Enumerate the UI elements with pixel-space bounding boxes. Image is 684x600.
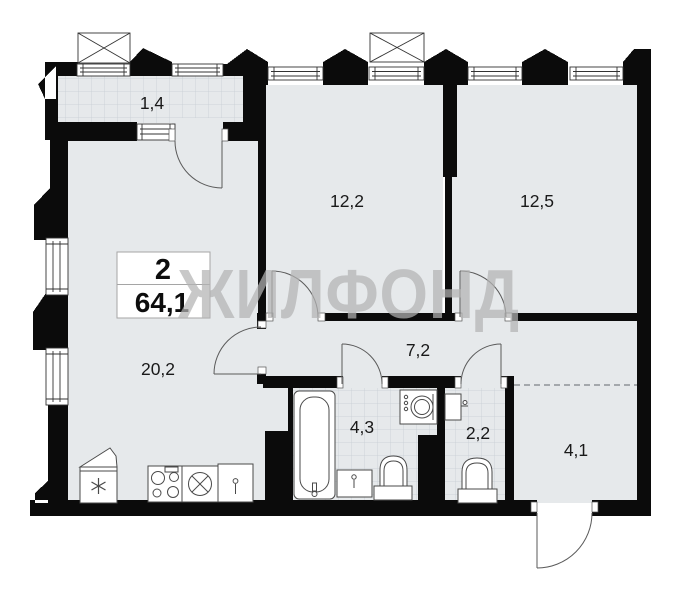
kitchen-sink-icon xyxy=(182,466,218,502)
watermark: ЖИЛФОНД xyxy=(177,255,520,333)
door-jamb xyxy=(382,377,388,388)
room-label-living-kitchen: 20,2 xyxy=(141,359,175,379)
room-label-hallway: 7,2 xyxy=(406,340,430,360)
room-label-balcony: 1,4 xyxy=(140,93,165,113)
window xyxy=(77,64,130,76)
room-label-bathroom: 4,3 xyxy=(350,417,374,437)
exterior-unit-icon xyxy=(78,33,130,63)
window xyxy=(468,67,522,80)
door-jamb xyxy=(501,377,507,388)
rooms-count: 2 xyxy=(155,254,171,286)
floor-plan: 1,4 12,2 12,5 20,2 7,2 4,3 2,2 4,1 2 64,… xyxy=(0,0,684,600)
window xyxy=(46,348,68,405)
room-label-wc: 2,2 xyxy=(466,423,490,443)
window xyxy=(268,67,323,80)
door-jamb xyxy=(455,377,461,388)
window xyxy=(172,64,223,76)
bathroom-sink-icon xyxy=(337,470,372,497)
door-jamb xyxy=(258,367,266,374)
door-jamb xyxy=(531,502,537,512)
bathtub-icon xyxy=(294,391,335,499)
exterior-unit-icon xyxy=(370,33,424,62)
wc-toilet-icon xyxy=(458,458,497,503)
room-label-bedroom-2: 12,5 xyxy=(520,191,554,211)
door-jamb xyxy=(222,129,228,141)
stove-icon xyxy=(148,466,182,502)
floor-balcony-doorway xyxy=(172,118,223,144)
window xyxy=(570,67,623,80)
washing-machine-icon xyxy=(400,390,437,424)
door-jamb xyxy=(592,502,598,512)
window xyxy=(369,67,424,80)
window xyxy=(46,238,68,295)
room-label-entry-hall: 4,1 xyxy=(564,440,588,460)
kitchen-cabinet-icon xyxy=(218,464,253,502)
door-entrance xyxy=(537,513,592,568)
room-label-bedroom-1: 12,2 xyxy=(330,191,364,211)
floor-plan-page: 1,4 12,2 12,5 20,2 7,2 4,3 2,2 4,1 2 64,… xyxy=(0,0,684,600)
door-jamb xyxy=(169,129,175,141)
